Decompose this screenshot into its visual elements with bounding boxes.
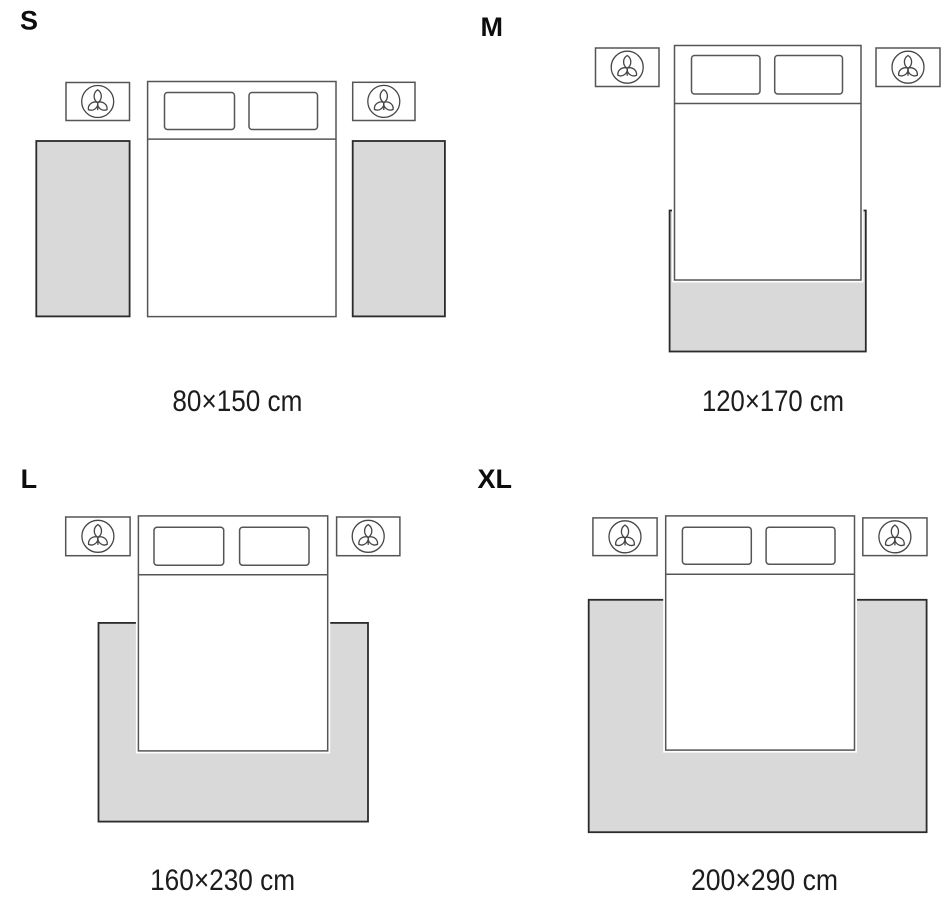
svg-text:160×230 cm: 160×230 cm xyxy=(150,864,295,897)
svg-text:S: S xyxy=(20,6,38,36)
svg-text:L: L xyxy=(21,464,37,494)
svg-text:120×170 cm: 120×170 cm xyxy=(702,385,844,418)
svg-text:XL: XL xyxy=(478,464,513,494)
svg-text:200×290 cm: 200×290 cm xyxy=(691,864,838,897)
svg-text:M: M xyxy=(481,12,504,42)
svg-text:80×150 cm: 80×150 cm xyxy=(172,385,302,418)
